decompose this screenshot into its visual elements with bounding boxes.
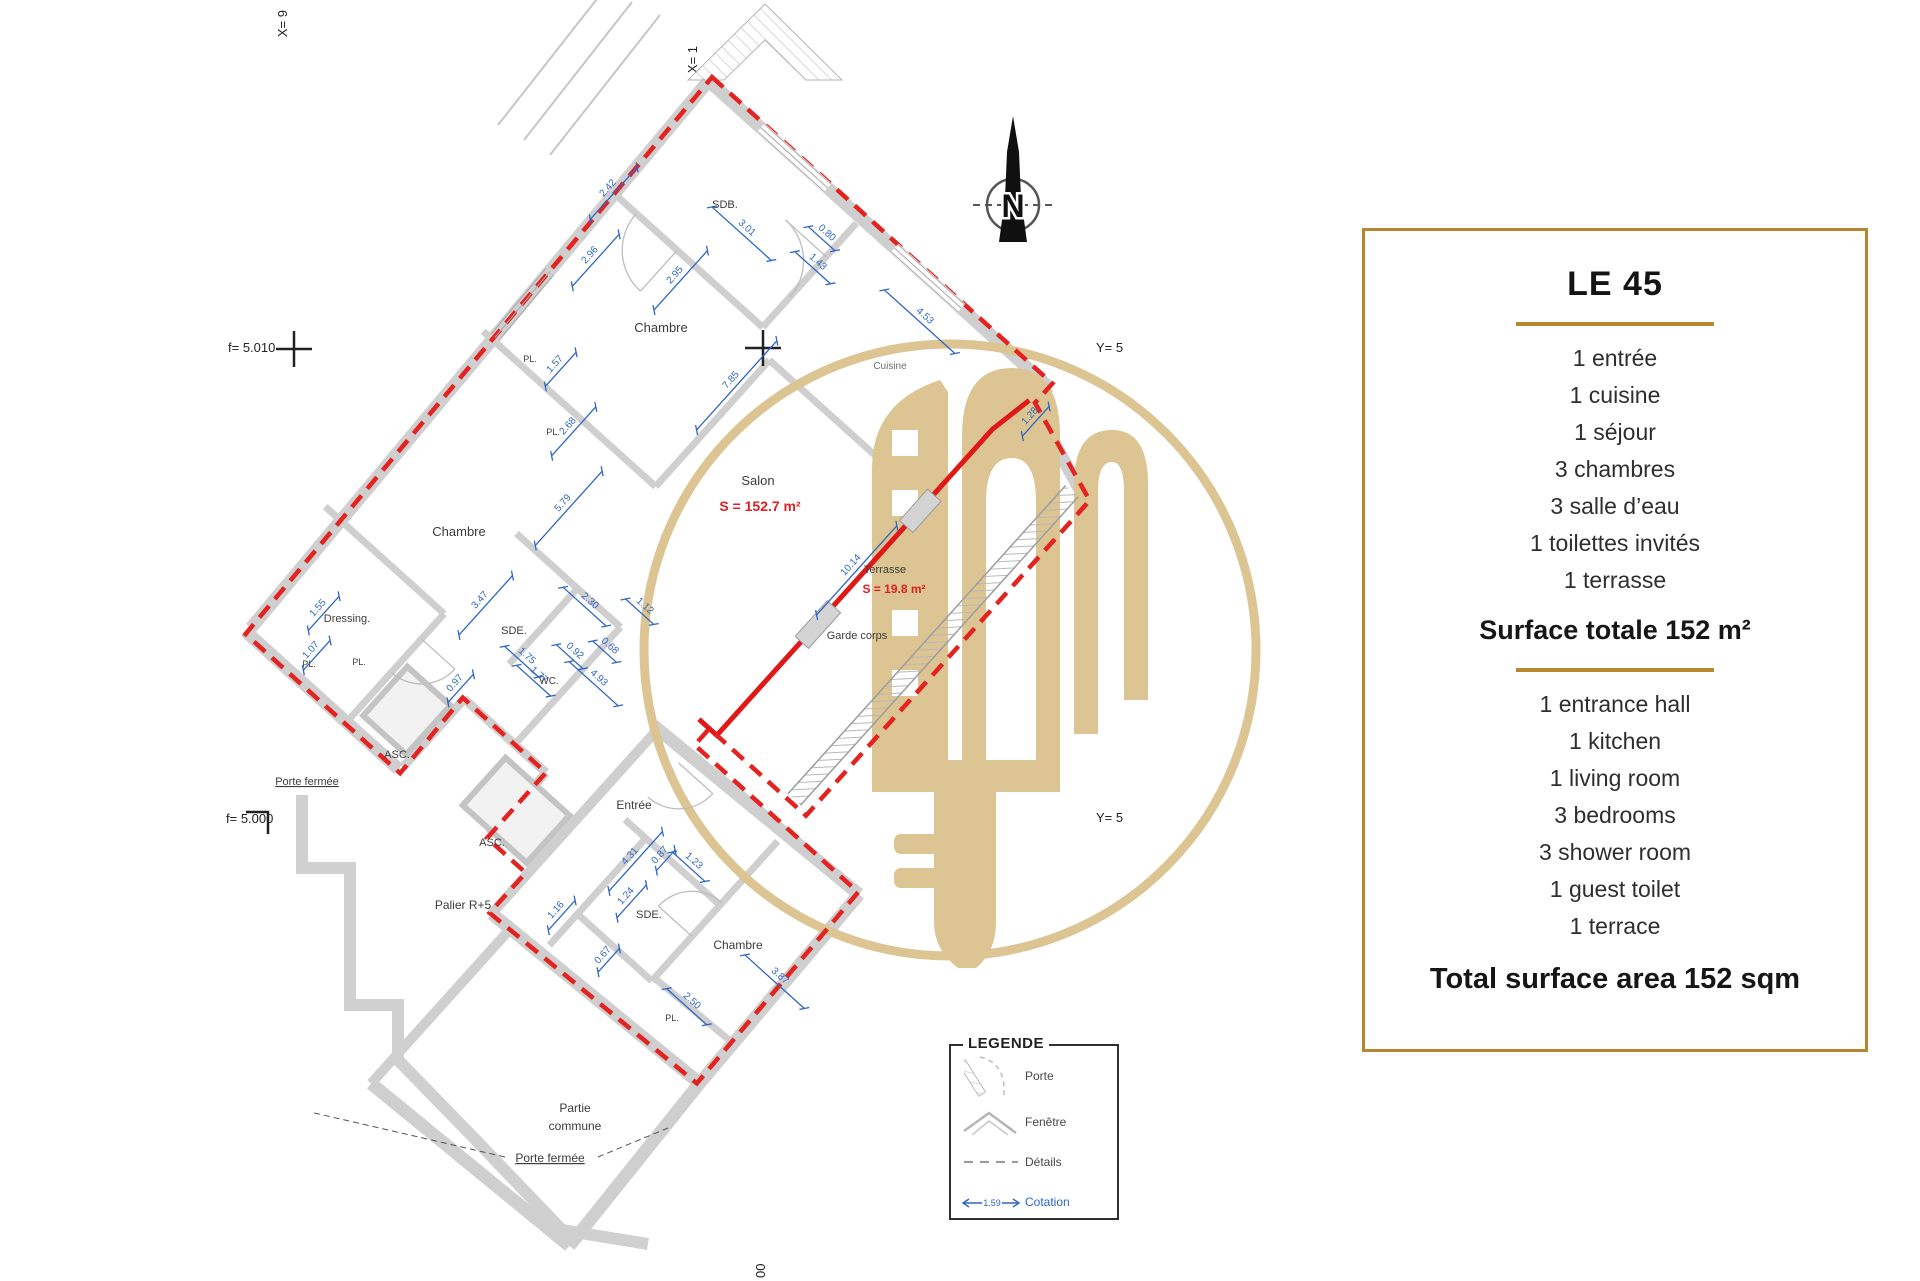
window-icon: [957, 1107, 1025, 1137]
dim-value: 2.96: [580, 244, 601, 266]
dim-value: 1.57: [545, 353, 566, 375]
room-label: SDE.: [501, 625, 527, 637]
key-tooth: [894, 868, 940, 888]
legend-title: LEGENDE: [963, 1035, 1049, 1052]
room-label: commune: [549, 1119, 602, 1133]
room-list-en: 1 entrance hall 1 kitchen 1 living room …: [1365, 686, 1865, 945]
surface-area-label: S = 19.8 m²: [862, 582, 925, 596]
legend-row-door: Porte: [951, 1050, 1117, 1102]
marker-y-lower: Y= 5: [1096, 810, 1123, 825]
surface-area-label: S = 152.7 m²: [719, 498, 801, 514]
dim-line: [712, 207, 771, 261]
dim-value: 4.93: [588, 668, 610, 689]
room-label: Chambre: [634, 320, 687, 335]
dim-value: 3.01: [736, 218, 758, 239]
window-line: [757, 131, 824, 191]
outer-structure: [302, 0, 842, 1244]
dashed-line-icon: [957, 1157, 1025, 1167]
north-compass: N: [973, 116, 1053, 242]
room-label: Garde corps: [827, 630, 888, 642]
legend-label: Fenêtre: [1025, 1115, 1066, 1129]
legend-row-details: Détails: [951, 1142, 1117, 1182]
dim-line: [535, 471, 602, 545]
legend-label: Détails: [1025, 1155, 1062, 1169]
wall: [610, 190, 762, 327]
wall: [483, 331, 655, 486]
marker-x-bottom: 00: [753, 1264, 768, 1278]
room-label: PL.: [665, 1013, 679, 1023]
dim-value: 0.92: [564, 641, 586, 662]
en-item: 1 terrace: [1365, 908, 1865, 945]
dim-value: 5.79: [553, 492, 574, 514]
dim-value: 7.85: [721, 369, 742, 391]
marker-x-top-right: X= 1: [685, 46, 700, 73]
dim-value: 0.68: [599, 636, 621, 657]
legend-row-window: Fenêtre: [951, 1102, 1117, 1142]
room-label: WC.: [539, 676, 558, 687]
en-item: 1 guest toilet: [1365, 871, 1865, 908]
key-window: [892, 430, 918, 456]
room-label: Porte fermée: [515, 1151, 585, 1165]
dimension: 7.85: [685, 330, 782, 435]
wall: [516, 533, 620, 627]
dim-value: 1.16: [546, 899, 567, 921]
room-label: Cuisine: [873, 361, 907, 372]
room-label: Salon: [741, 473, 774, 488]
room-label: ASC.: [479, 837, 505, 849]
key-watermark-icon: [934, 790, 996, 968]
room-label: Partie: [559, 1101, 591, 1115]
fr-item: 1 entrée: [1365, 340, 1865, 377]
room-label: ASC.: [384, 749, 410, 761]
room-label: Palier R+5: [435, 898, 492, 912]
fr-item: 1 séjour: [1365, 414, 1865, 451]
legend-row-dimension: 1.59 Cotation: [951, 1182, 1117, 1222]
dim-value: 1.23: [683, 851, 705, 872]
dim-value: 2.95: [665, 264, 686, 286]
dim-line: [654, 251, 708, 310]
room-label: Chambre: [713, 938, 763, 952]
dimension: 0.92: [551, 633, 594, 674]
dimension: 1.16: [537, 890, 580, 936]
room-label: Chambre: [432, 524, 485, 539]
wall: [325, 507, 444, 614]
dim-value: 1.24: [616, 885, 637, 907]
legend-label: Porte: [1025, 1069, 1054, 1083]
room-label: PL.: [352, 657, 366, 667]
room-label: PL.: [302, 659, 316, 669]
window-line: [898, 244, 965, 304]
room-label: PL.: [523, 354, 537, 364]
marker-f-upper: f= 5.010: [228, 340, 275, 355]
en-item: 1 entrance hall: [1365, 686, 1865, 723]
fr-item: 3 salle d’eau: [1365, 488, 1865, 525]
key-arch-cutout: [986, 458, 1036, 792]
dim-value: 4.53: [914, 306, 936, 327]
wall: [577, 914, 651, 981]
panel-title: LE 45: [1365, 265, 1865, 304]
room-label: Entrée: [616, 798, 652, 812]
dim-line: [697, 341, 777, 430]
north-letter: N: [1001, 188, 1024, 224]
legend-dim-value: 1.59: [983, 1198, 1001, 1208]
dim-value: 3.47: [470, 589, 491, 611]
marker-x-top-left: X= 9: [275, 10, 290, 37]
surface-total-fr: Surface totale 152 m²: [1365, 615, 1865, 646]
dimension: 0.80: [803, 215, 846, 256]
surface-total-en: Total surface area 152 sqm: [1365, 963, 1865, 996]
room-label: Dressing.: [324, 613, 370, 625]
dimension: 2.96: [561, 223, 624, 291]
key-window: [892, 610, 918, 636]
wall: [763, 223, 857, 327]
key-watermark-icon: [1074, 430, 1148, 734]
dimension-arrow-icon: 1.59: [957, 1194, 1025, 1210]
fr-item: 1 toilettes invités: [1365, 525, 1865, 562]
room-list-fr: 1 entrée 1 cuisine 1 séjour 3 chambres 3…: [1365, 340, 1865, 599]
gold-divider: [1516, 322, 1714, 326]
info-panel: LE 45 1 entrée 1 cuisine 1 séjour 3 cham…: [1362, 228, 1868, 1052]
dim-value: 0.80: [816, 223, 838, 244]
window-line: [891, 252, 958, 312]
dim-value: 1.07: [301, 639, 322, 661]
window-line: [761, 128, 828, 188]
room-label: SDB.: [712, 199, 738, 211]
room-label: SDE.: [636, 909, 662, 921]
fr-item: 1 terrasse: [1365, 562, 1865, 599]
fr-item: 1 cuisine: [1365, 377, 1865, 414]
marker-y-upper: Y= 5: [1096, 340, 1123, 355]
window-line: [764, 124, 831, 184]
gold-divider: [1516, 668, 1714, 672]
wall: [654, 975, 731, 1045]
wall: [656, 360, 770, 486]
en-item: 3 bedrooms: [1365, 797, 1865, 834]
en-item: 3 shower room: [1365, 834, 1865, 871]
key-watermark-icon: [872, 760, 1060, 792]
room-label: Porte fermée: [275, 776, 339, 788]
dimension: 5.79: [524, 460, 608, 550]
dimension: 1.55: [297, 585, 344, 635]
room-label: Terrasse: [864, 564, 906, 576]
room-label: PL.: [546, 427, 560, 437]
en-item: 1 living room: [1365, 760, 1865, 797]
en-item: 1 kitchen: [1365, 723, 1865, 760]
key-tooth: [894, 834, 940, 854]
door-icon: [957, 1051, 1025, 1101]
page: { "panel": { "title": "LE 45", "accent":…: [0, 0, 1920, 1281]
fr-item: 3 chambres: [1365, 451, 1865, 488]
window-line: [894, 248, 961, 308]
legend-box: LEGENDE Porte Fenêtre Détails: [949, 1044, 1119, 1220]
legend-label: Cotation: [1025, 1195, 1070, 1209]
wall: [709, 81, 1049, 387]
roof-hatch: [688, 4, 842, 80]
